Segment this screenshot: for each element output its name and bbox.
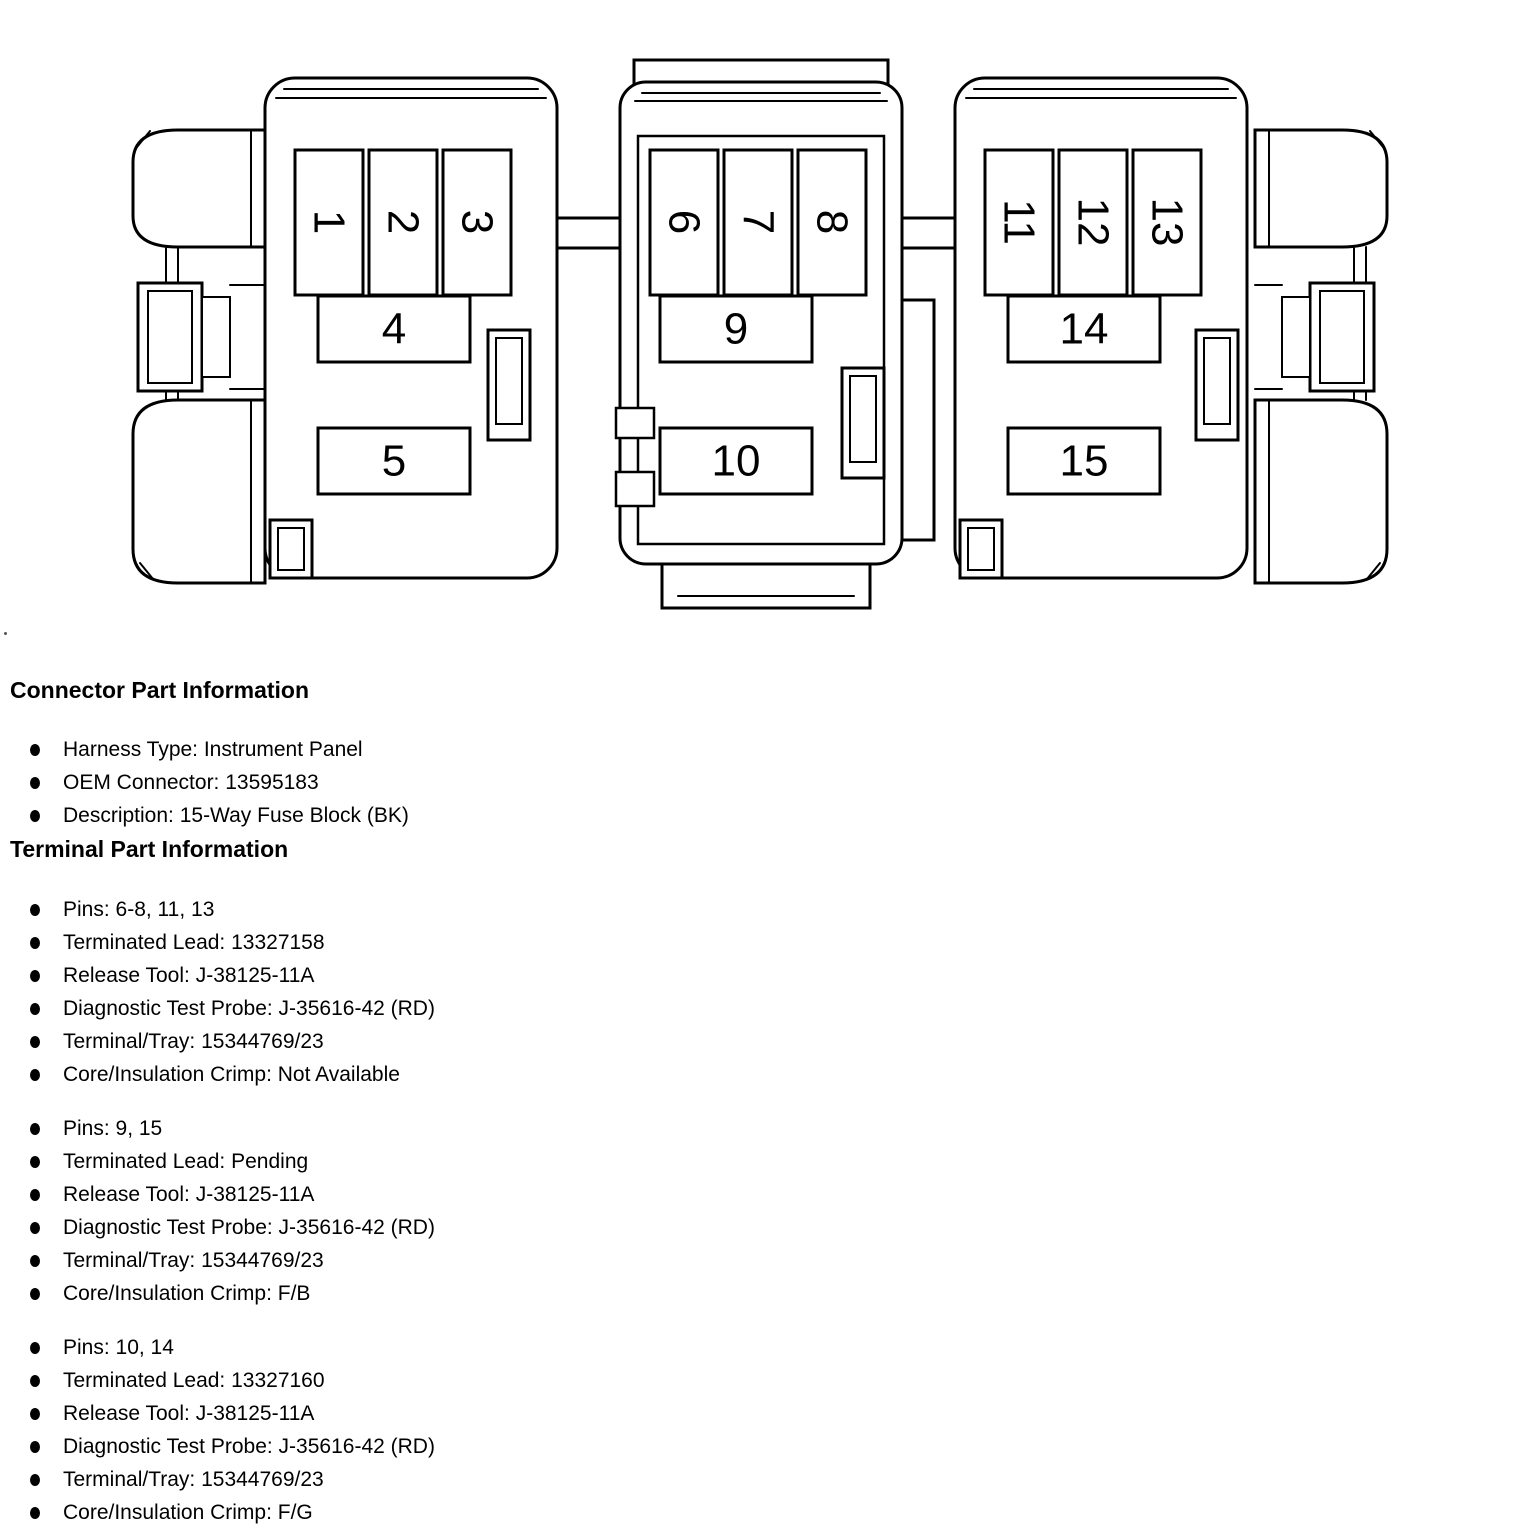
terminal-group-3: Pins: 10, 14 Terminated Lead: 13327160 R… <box>0 1331 1520 1529</box>
list-item: Terminated Lead: 13327158 <box>0 926 1520 959</box>
list-item: Core/Insulation Crimp: F/B <box>0 1277 1520 1310</box>
pin-label-11: 11 <box>995 199 1044 245</box>
list-item: Terminal/Tray: 15344769/23 <box>0 1463 1520 1496</box>
latch-right-bottom-tab <box>1255 400 1387 583</box>
bullet-icon <box>30 1441 40 1453</box>
list-item: Terminal/Tray: 15344769/23 <box>0 1025 1520 1058</box>
list-item-text: Description: 15-Way Fuse Block (BK) <box>63 804 409 828</box>
pod-middle-notch-upper <box>616 408 654 438</box>
latch-right-clip <box>1255 283 1374 391</box>
list-item-text: Diagnostic Test Probe: J-35616-42 (RD) <box>63 997 435 1021</box>
list-item: Diagnostic Test Probe: J-35616-42 (RD) <box>0 1211 1520 1244</box>
scan-artifact-dot <box>4 632 7 635</box>
bullet-icon <box>30 1123 40 1135</box>
pin-label-2: 2 <box>379 210 428 234</box>
bullet-icon <box>30 1069 40 1081</box>
pin-label-4: 4 <box>382 305 406 354</box>
bullet-icon <box>30 1507 40 1519</box>
bullet-icon <box>30 744 40 756</box>
list-item: Description: 15-Way Fuse Block (BK) <box>0 799 1520 832</box>
pin-label-10: 10 <box>712 437 761 486</box>
list-item: OEM Connector: 13595183 <box>0 766 1520 799</box>
bullet-icon <box>30 937 40 949</box>
pod-right: 11 12 13 14 15 <box>955 78 1247 578</box>
slot-right <box>1196 330 1238 440</box>
list-item: Terminated Lead: Pending <box>0 1145 1520 1178</box>
list-item-text: Terminal/Tray: 15344769/23 <box>63 1468 324 1492</box>
latch-left-bottom-tab <box>133 400 265 583</box>
list-item-text: Diagnostic Test Probe: J-35616-42 (RD) <box>63 1435 435 1459</box>
pod-right-foot <box>960 520 1002 578</box>
pod-middle-notch-lower <box>616 472 654 506</box>
slot-middle <box>842 368 884 478</box>
pin-label-13: 13 <box>1143 198 1192 247</box>
latch-left-clip <box>138 283 265 391</box>
latch-left <box>133 130 265 583</box>
part-information-text: Connector Part Information Harness Type:… <box>0 650 1520 1529</box>
pin-label-12: 12 <box>1069 198 1118 247</box>
terminal-group-2: Pins: 9, 15 Terminated Lead: Pending Rel… <box>0 1112 1520 1310</box>
list-item: Core/Insulation Crimp: F/G <box>0 1496 1520 1529</box>
bullet-icon <box>30 1222 40 1234</box>
list-item: Diagnostic Test Probe: J-35616-42 (RD) <box>0 992 1520 1025</box>
list-item: Pins: 9, 15 <box>0 1112 1520 1145</box>
bullet-icon <box>30 1036 40 1048</box>
list-item: Release Tool: J-38125-11A <box>0 1397 1520 1430</box>
pin-label-7: 7 <box>734 210 783 234</box>
list-item: Pins: 6-8, 11, 13 <box>0 893 1520 926</box>
bullet-icon <box>30 1189 40 1201</box>
list-item-text: Pins: 10, 14 <box>63 1336 174 1360</box>
pin-label-5: 5 <box>382 437 406 486</box>
list-item-text: Terminated Lead: 13327158 <box>63 931 325 955</box>
pin-label-3: 3 <box>453 210 502 234</box>
bullet-icon <box>30 1342 40 1354</box>
pod-left: 1 2 3 4 5 <box>265 78 557 578</box>
pin-label-1: 1 <box>305 210 354 234</box>
bullet-icon <box>30 1375 40 1387</box>
list-item: Harness Type: Instrument Panel <box>0 733 1520 766</box>
list-item-text: Harness Type: Instrument Panel <box>63 738 363 762</box>
list-item: Core/Insulation Crimp: Not Available <box>0 1058 1520 1091</box>
latch-right <box>1255 130 1387 583</box>
list-item-text: OEM Connector: 13595183 <box>63 771 319 795</box>
bullet-icon <box>30 1288 40 1300</box>
bullet-icon <box>30 1255 40 1267</box>
list-item-text: Pins: 9, 15 <box>63 1117 162 1141</box>
pin-label-14: 14 <box>1060 305 1109 354</box>
bullet-icon <box>30 1156 40 1168</box>
list-item: Release Tool: J-38125-11A <box>0 959 1520 992</box>
bullet-icon <box>30 970 40 982</box>
list-item: Release Tool: J-38125-11A <box>0 1178 1520 1211</box>
list-item-text: Core/Insulation Crimp: Not Available <box>63 1063 400 1087</box>
bullet-icon <box>30 1408 40 1420</box>
list-item-text: Core/Insulation Crimp: F/G <box>63 1501 313 1525</box>
list-item-text: Terminal/Tray: 15344769/23 <box>63 1249 324 1273</box>
list-item-text: Pins: 6-8, 11, 13 <box>63 898 214 922</box>
list-item-text: Terminated Lead: Pending <box>63 1150 308 1174</box>
bullet-icon <box>30 1003 40 1015</box>
pod-middle-foot <box>662 564 870 608</box>
pin-label-6: 6 <box>660 210 709 234</box>
manual-page: 1 2 3 4 5 <box>0 0 1520 1534</box>
connector-info-heading: Connector Part Information <box>0 676 1520 704</box>
list-item-text: Core/Insulation Crimp: F/B <box>63 1282 310 1306</box>
list-item: Terminated Lead: 13327160 <box>0 1364 1520 1397</box>
slot-left <box>488 330 530 440</box>
list-item-text: Release Tool: J-38125-11A <box>63 1183 314 1207</box>
list-item: Pins: 10, 14 <box>0 1331 1520 1364</box>
list-item-text: Release Tool: J-38125-11A <box>63 964 314 988</box>
pod-middle: 6 7 8 9 10 <box>616 82 902 608</box>
pin-label-8: 8 <box>808 210 857 234</box>
terminal-info-heading: Terminal Part Information <box>0 835 1520 863</box>
bullet-icon <box>30 777 40 789</box>
list-item: Terminal/Tray: 15344769/23 <box>0 1244 1520 1277</box>
bullet-icon <box>30 904 40 916</box>
latch-left-top-tab <box>133 130 265 247</box>
list-item: Diagnostic Test Probe: J-35616-42 (RD) <box>0 1430 1520 1463</box>
bullet-icon <box>30 810 40 822</box>
pin-label-9: 9 <box>724 305 748 354</box>
list-item-text: Terminated Lead: 13327160 <box>63 1369 325 1393</box>
terminal-group-1: Pins: 6-8, 11, 13 Terminated Lead: 13327… <box>0 893 1520 1091</box>
list-item-text: Release Tool: J-38125-11A <box>63 1402 314 1426</box>
pod-left-foot <box>270 520 312 578</box>
list-item-text: Diagnostic Test Probe: J-35616-42 (RD) <box>63 1216 435 1240</box>
bullet-icon <box>30 1474 40 1486</box>
connector-diagram: 1 2 3 4 5 <box>0 0 1520 650</box>
latch-right-top-tab <box>1255 130 1387 247</box>
pin-label-15: 15 <box>1060 437 1109 486</box>
list-item-text: Terminal/Tray: 15344769/23 <box>63 1030 324 1054</box>
connector-info-list: Harness Type: Instrument Panel OEM Conne… <box>0 733 1520 832</box>
